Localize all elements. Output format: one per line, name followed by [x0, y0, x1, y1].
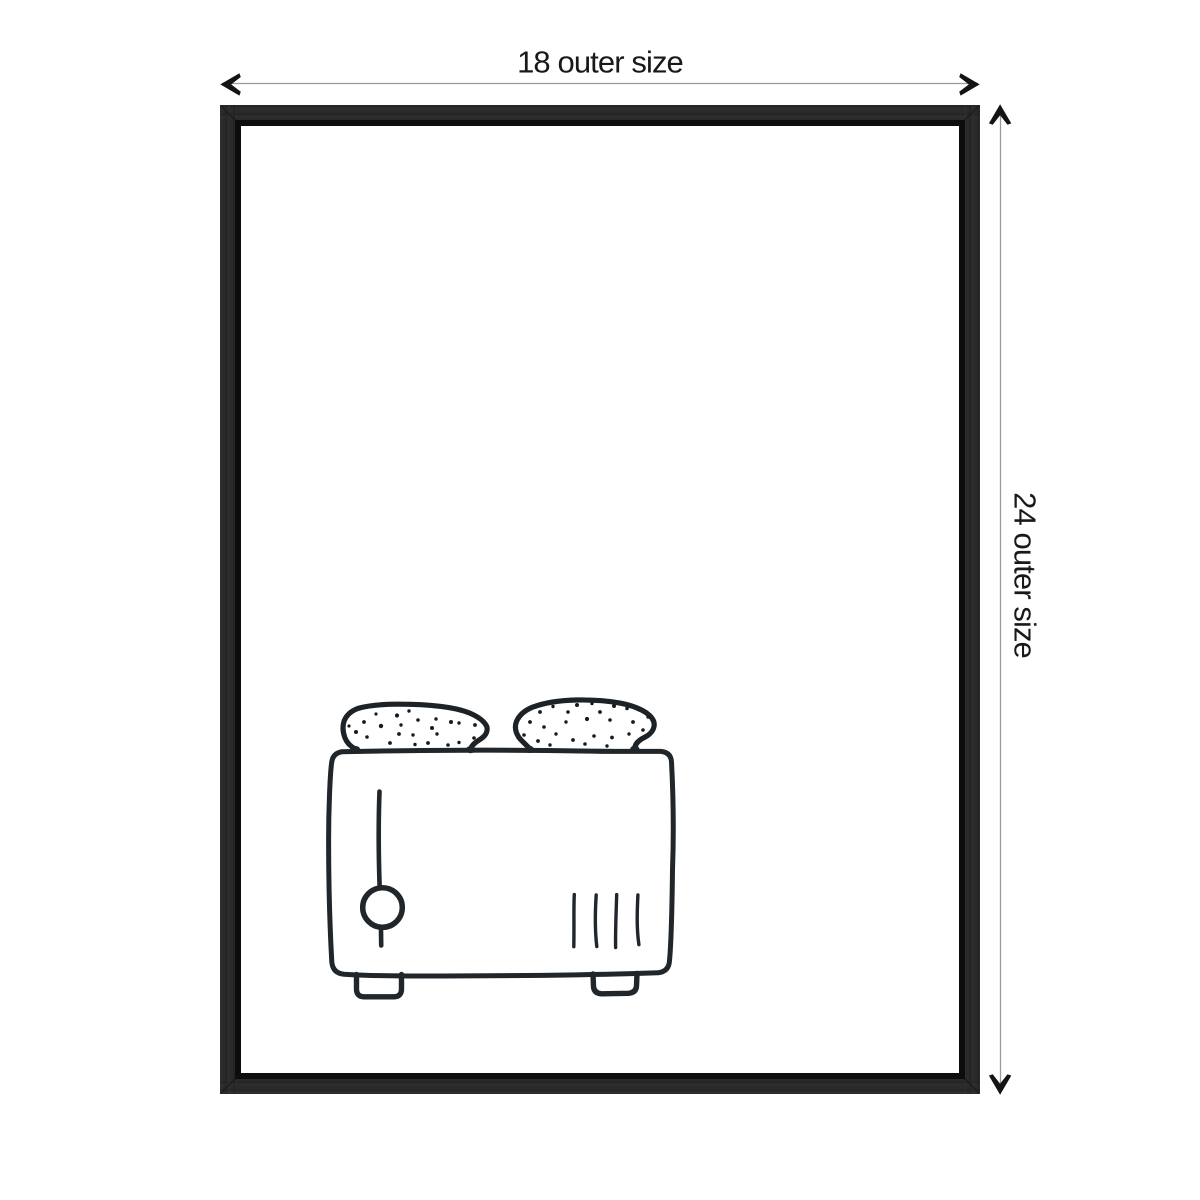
svg-text:18 outer size: 18 outer size — [517, 45, 683, 80]
svg-text:24 outer size: 24 outer size — [1008, 492, 1043, 658]
